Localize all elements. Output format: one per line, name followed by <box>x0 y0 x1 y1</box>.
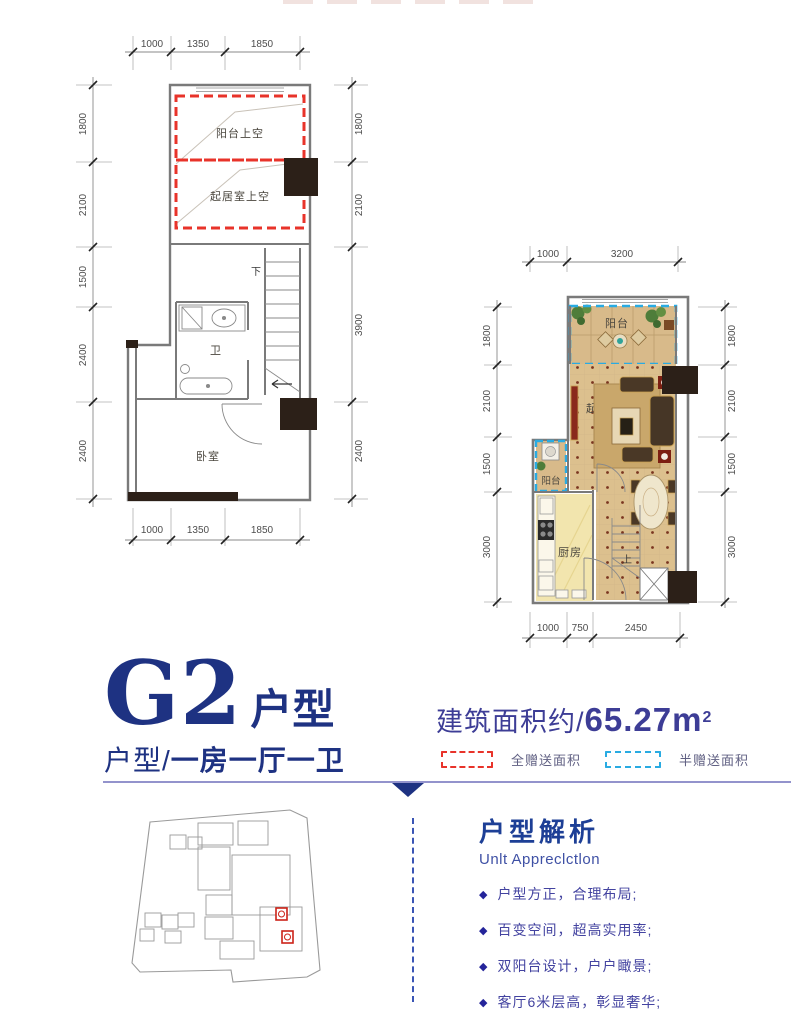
bullet-text: 双阳台设计，户户瞰景; <box>497 956 652 976</box>
dim-label: 3000 <box>727 535 738 558</box>
room-label-stairs-up: 上 <box>622 554 632 566</box>
dim-label: 2450 <box>625 623 648 634</box>
highlighted-unit-marker <box>276 908 287 920</box>
room-label-balcony-void: 阳台上空 <box>216 126 264 140</box>
analysis-bullet-list: ◆ 户型方正，合理布局; ◆ 百变空间，超高实用率; ◆ 双阳台设计，户户瞰景;… <box>479 884 779 1012</box>
outer-walls <box>128 85 310 500</box>
area-superscript: 2 <box>702 709 712 726</box>
title-block: G2 户型 户型/一房一厅一卫 <box>104 650 345 779</box>
dim-label: 1850 <box>251 39 274 50</box>
dim-label: 2100 <box>78 193 89 216</box>
area-block: 建筑面积约/65.27m2 <box>436 700 712 739</box>
room-label-living-void: 起居室上空 <box>210 189 270 203</box>
dim-label: 2100 <box>354 193 365 216</box>
dim-label: 1800 <box>78 112 89 135</box>
dim-label: 1800 <box>482 324 493 347</box>
analysis-title: 户型解析 <box>479 812 779 849</box>
bullet-text: 户型方正，合理布局; <box>497 884 637 904</box>
diamond-bullet-icon: ◆ <box>479 960 488 973</box>
dim-label: 2400 <box>78 439 89 462</box>
diamond-bullet-icon: ◆ <box>479 996 488 1009</box>
dim-label: 1000 <box>537 249 560 260</box>
dim-label: 1500 <box>482 452 493 475</box>
floorplan-flyer: { "colors": { "accent_blue": "#1e3282", … <box>0 0 810 1015</box>
dim-label: 1350 <box>187 39 210 50</box>
area-label: 建筑面积约/ <box>436 707 585 737</box>
diamond-bullet-icon: ◆ <box>479 924 488 937</box>
black-block <box>668 571 697 603</box>
dim-label: 1800 <box>354 112 365 135</box>
diamond-bullet-icon: ◆ <box>479 888 488 901</box>
full-gift-legend-swatch <box>441 751 493 768</box>
unit-code: G2 <box>104 650 242 736</box>
flue-block <box>662 366 698 394</box>
dim-label: 3000 <box>482 535 493 558</box>
divider-rule <box>103 781 791 783</box>
layout-rooms: 一房一厅一卫 <box>171 745 345 776</box>
unit-code-suffix: 户型 <box>250 676 334 737</box>
black-bottom-wall <box>128 492 238 501</box>
plant-icon <box>537 462 546 471</box>
room-label-side-balcony: 阳台 <box>541 475 560 487</box>
stove-icon <box>538 520 554 540</box>
dim-label: 1000 <box>141 39 164 50</box>
black-block <box>280 398 317 430</box>
dim-label: 1000 <box>537 623 560 634</box>
area-value: 65.27m <box>585 701 703 738</box>
room-label-stairs-down: 下 <box>251 267 261 278</box>
upper-floor-plan: 1000 1350 1850 1000 1350 1850 1800 2100 … <box>40 10 390 570</box>
analysis-bullet: ◆ 客厅6米层高，彰显奢华; <box>479 992 779 1012</box>
room-label-kitchen: 厨房 <box>558 546 582 559</box>
half-gift-legend-swatch <box>605 751 661 768</box>
dim-label: 2100 <box>482 389 493 412</box>
dim-label: 2100 <box>727 389 738 412</box>
room-label-bedroom: 卧室 <box>196 449 220 463</box>
bullet-text: 百变空间，超高实用率; <box>497 920 652 940</box>
half-gift-legend-label: 半赠送面积 <box>679 750 749 769</box>
layout-subtitle: 户型/一房一厅一卫 <box>104 739 345 779</box>
dim-label: 3200 <box>611 249 634 260</box>
dim-label: 1500 <box>78 265 89 288</box>
layout-prefix: 户型/ <box>104 745 171 776</box>
dim-label: 1500 <box>727 452 738 475</box>
vertical-dashed-divider <box>412 818 414 1002</box>
dim-label: 2400 <box>78 343 89 366</box>
site-boundary <box>132 810 320 982</box>
dim-label: 3900 <box>354 313 365 336</box>
room-label-bath: 卫 <box>210 345 222 357</box>
flue-block <box>284 158 318 196</box>
cropped-header-remnant <box>283 0 533 4</box>
lower-floor-plan: 1000 3200 1000 750 2450 1800 2100 1500 3… <box>460 240 750 660</box>
dim-label: 1850 <box>251 525 274 536</box>
hatched-shaft <box>640 568 668 600</box>
full-gift-legend-label: 全赠送面积 <box>511 750 581 769</box>
analysis-bullet: ◆ 户型方正，合理布局; <box>479 884 779 904</box>
analysis-bullet: ◆ 百变空间，超高实用率; <box>479 920 779 940</box>
analysis-section: 户型解析 Unlt Appreclctlon ◆ 户型方正，合理布局; ◆ 百变… <box>479 812 779 1015</box>
tv-cabinet <box>571 386 578 440</box>
legend: 全赠送面积 半赠送面积 <box>441 750 749 769</box>
analysis-bullet: ◆ 双阳台设计，户户瞰景; <box>479 956 779 976</box>
black-wall-cap <box>126 340 138 348</box>
site-plan <box>110 795 410 1010</box>
highlighted-unit-marker <box>282 931 293 943</box>
dim-label: 1000 <box>141 525 164 536</box>
washer-icon <box>542 443 559 460</box>
dim-label: 2400 <box>354 439 365 462</box>
dim-label: 750 <box>572 623 589 634</box>
analysis-subtitle: Unlt Appreclctlon <box>479 851 779 868</box>
bullet-text: 客厅6米层高，彰显奢华; <box>497 992 661 1012</box>
dim-label: 1800 <box>727 324 738 347</box>
room-label-balcony: 阳台 <box>605 316 629 330</box>
dim-label: 1350 <box>187 525 210 536</box>
